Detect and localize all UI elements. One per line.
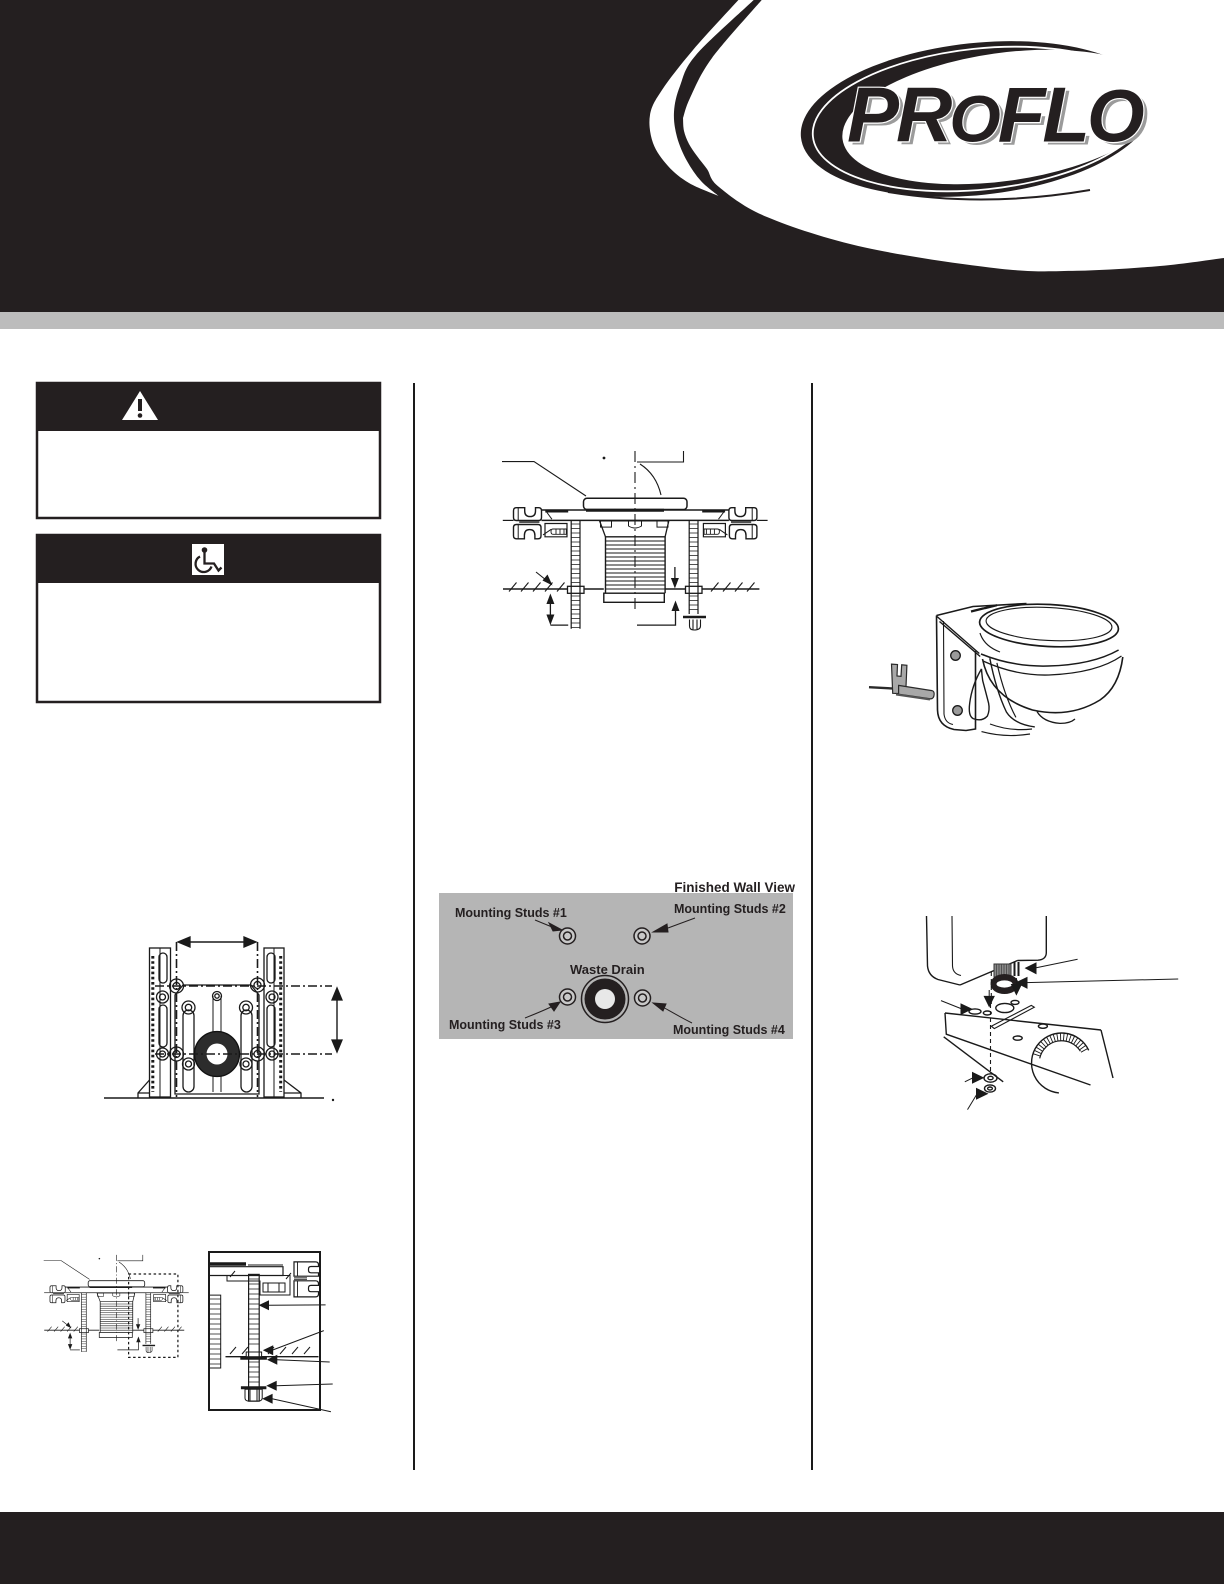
svg-text:Mounting Studs #3: Mounting Studs #3	[449, 1018, 561, 1032]
svg-text:Finished Wall View: Finished Wall View	[674, 880, 795, 895]
svg-text:Mounting Studs #4: Mounting Studs #4	[673, 1023, 785, 1037]
svg-text:Mounting Studs #1: Mounting Studs #1	[455, 906, 567, 920]
svg-text:Waste Drain: Waste Drain	[570, 962, 645, 977]
svg-text:Mounting Studs #2: Mounting Studs #2	[674, 902, 786, 916]
svg-text:PROFLO: PROFLO	[847, 71, 1144, 159]
